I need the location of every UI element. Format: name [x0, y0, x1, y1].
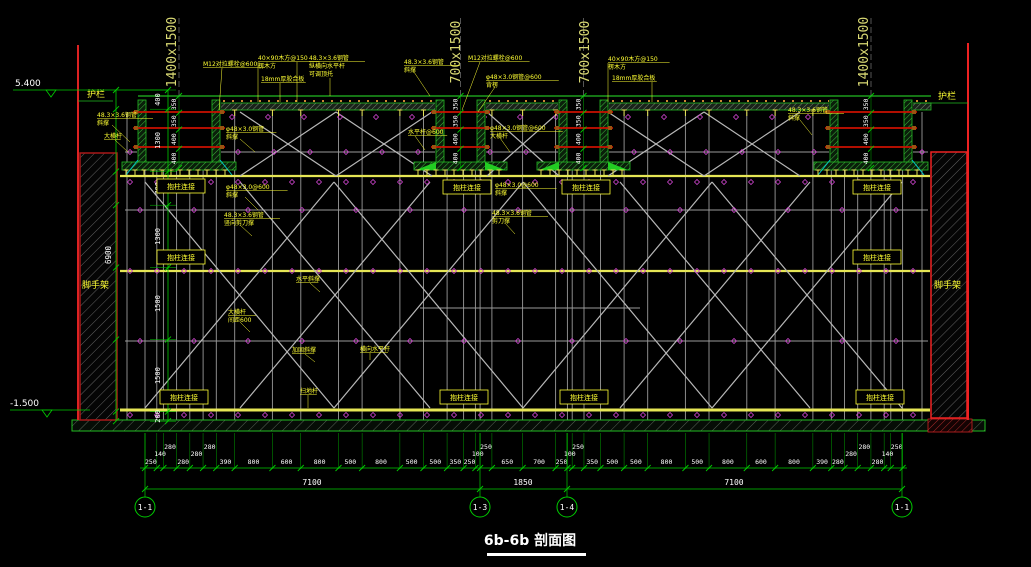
column-brace-box-label: 抱柱连接	[453, 183, 481, 192]
tie-rod-nut-icon	[608, 126, 612, 130]
callout-text: 楞木方	[608, 63, 626, 71]
callout-text: 48.3×3.6钢管	[404, 58, 444, 66]
deck-nail-icon	[765, 100, 767, 102]
coupler-diamond-icon	[587, 413, 592, 418]
coupler-diamond-icon	[770, 115, 775, 120]
callout-text: φ48×3.0@600	[226, 184, 270, 191]
right-wall-footing	[928, 419, 972, 432]
callout-leader	[305, 354, 315, 362]
deck-nail-icon	[621, 100, 623, 102]
callout-text: 48.3×3.6钢管	[788, 106, 828, 114]
deck-nail-icon	[720, 100, 722, 102]
column-brace-box-label: 抱柱连接	[863, 253, 891, 262]
beam-size-label-4: 1400x1500	[857, 17, 872, 87]
deck-nail-icon	[367, 100, 369, 102]
bottom-dim-value: 250	[464, 458, 476, 466]
coupler-diamond-icon	[830, 413, 835, 418]
bottom-dim-value: 800	[314, 458, 326, 466]
tie-rod-nut-icon	[608, 145, 612, 149]
tie-rod-nut-icon	[608, 110, 612, 114]
coupler-diamond-icon	[344, 180, 349, 185]
deck-nail-icon	[630, 100, 632, 102]
callout-text: 18mm厚胶合板	[261, 75, 304, 83]
left-dim-value: 400	[154, 93, 162, 106]
bottom-dim-value: 250	[556, 458, 568, 466]
column-brace-box-label: 抱柱连接	[167, 182, 195, 191]
deck-nail-icon	[241, 100, 243, 102]
deck-nail-icon	[916, 100, 918, 102]
beam-size-label-2: 700x1500	[449, 21, 464, 84]
bottom-dim-value: 800	[248, 458, 260, 466]
callout-text: 斜撑	[495, 189, 507, 197]
coupler-diamond-icon	[614, 180, 619, 185]
bottom-dim-value: 800	[661, 458, 673, 466]
beam-inner-dim: 350	[170, 115, 178, 127]
coupler-diamond-icon	[668, 180, 673, 185]
coupler-diamond-icon	[803, 413, 808, 418]
elevation-bottom-label: -1.500	[10, 399, 39, 409]
deck-nail-icon	[259, 100, 261, 102]
deck-nail-icon	[639, 100, 641, 102]
bottom-dim-value: 800	[722, 458, 734, 466]
bottom-dim-value: 800	[788, 458, 800, 466]
deck-nail-icon	[534, 100, 536, 102]
beam-inner-dim: 350	[170, 98, 178, 110]
guardrail-label-right: 护栏	[938, 90, 956, 102]
tie-rod-nut-icon	[555, 145, 559, 149]
bottom-dim-value: 250	[572, 443, 584, 451]
tie-rod-nut-icon	[220, 126, 224, 130]
callout-text: φ48×3.0@600	[495, 182, 539, 189]
tie-rod-nut-icon	[485, 110, 489, 114]
callout-text: 大横杆	[228, 308, 246, 316]
bottom-dim-value: 280	[204, 443, 216, 451]
deck-nail-icon	[819, 100, 821, 102]
section-drawing: 3503504004003503504004003503504004003503…	[0, 0, 1031, 567]
tie-rod-nut-icon	[432, 145, 436, 149]
callout-text: 48.3×3.6钢管	[224, 211, 264, 219]
coupler-diamond-icon	[533, 413, 538, 418]
scaffold-label-right: 脚手架	[934, 279, 961, 291]
deck-nail-icon	[304, 100, 306, 102]
beam-inner-dim: 350	[862, 115, 870, 127]
beam-side-form	[830, 100, 838, 163]
deck-nail-icon	[295, 100, 297, 102]
tie-rod-nut-icon	[485, 126, 489, 130]
coupler-diamond-icon	[830, 180, 835, 185]
coupler-diamond-icon	[371, 413, 376, 418]
bottom-total-left: 7100	[302, 478, 321, 487]
left-dim-value: 1500	[154, 367, 162, 384]
callout-text: 背楞	[486, 81, 498, 89]
deck-nail-icon	[729, 100, 731, 102]
callout-text: φ48×3.0钢管@600	[486, 73, 542, 81]
coupler-diamond-icon	[410, 115, 415, 120]
tie-rod-nut-icon	[912, 145, 916, 149]
coupler-diamond-icon	[452, 413, 457, 418]
callout-text: 剪刀撑	[492, 217, 510, 225]
coupler-diamond-icon	[290, 180, 295, 185]
deck-nail-icon	[801, 100, 803, 102]
column-brace-box-label: 抱柱连接	[450, 393, 478, 402]
bottom-dim-value: 280	[832, 458, 844, 466]
coupler-diamond-icon	[722, 180, 727, 185]
bottom-dim-value: 280	[872, 458, 884, 466]
callout-text: φ48×3.0钢管@600	[490, 124, 546, 132]
callout-text: 斜撑	[788, 114, 800, 122]
beam-inner-dim: 350	[575, 98, 583, 110]
deck-nail-icon	[783, 100, 785, 102]
coupler-diamond-icon	[317, 180, 322, 185]
deck-nail-icon	[925, 100, 927, 102]
callout-text: 加固斜撑	[292, 346, 316, 354]
beam-side-form	[477, 100, 485, 163]
coupler-diamond-icon	[230, 115, 235, 120]
left-dim-value: 1300	[154, 228, 162, 245]
bottom-dim-value: 280	[164, 443, 176, 451]
coupler-diamond-icon	[911, 413, 916, 418]
callout-text: 48.3×3.6钢管	[97, 111, 137, 119]
tie-rod-nut-icon	[220, 110, 224, 114]
coupler-diamond-icon	[425, 413, 430, 418]
tie-rod-nut-icon	[912, 110, 916, 114]
coupler-diamond-icon	[695, 413, 700, 418]
tie-rod-nut-icon	[555, 110, 559, 114]
ground-strip	[72, 420, 985, 431]
coupler-diamond-icon	[626, 115, 631, 120]
grid-bubble-label: 1-4	[560, 503, 575, 512]
coupler-diamond-icon	[302, 115, 307, 120]
callout-text: φ48×3.0钢管	[226, 125, 264, 133]
tie-rod-nut-icon	[134, 126, 138, 130]
deck-nail-icon	[612, 100, 614, 102]
deck-nail-icon	[747, 100, 749, 102]
tie-rod-nut-icon	[485, 145, 489, 149]
coupler-diamond-icon	[560, 413, 565, 418]
deck-nail-icon	[403, 100, 405, 102]
deck-nail-icon	[277, 100, 279, 102]
scaffold-posts	[127, 112, 922, 420]
coupler-diamond-icon	[734, 115, 739, 120]
beam-inner-dim: 350	[452, 115, 460, 127]
coupler-diamond-icon	[479, 413, 484, 418]
grid-bubble-label: 1-1	[138, 503, 153, 512]
left-dim-value: 1500	[154, 295, 162, 312]
coupler-diamond-icon	[209, 413, 214, 418]
coupler-diamond-icon	[290, 413, 295, 418]
bottom-dim-value: 350	[449, 458, 461, 466]
callout-text: 扫地杆	[300, 387, 318, 395]
bottom-dim-value: 280	[177, 458, 189, 466]
deck-nail-icon	[756, 100, 758, 102]
deck-nail-icon	[385, 100, 387, 102]
bottom-dim-value: 250	[480, 443, 492, 451]
deck-strip	[912, 103, 931, 110]
tie-rod-nut-icon	[134, 145, 138, 149]
deck-nail-icon	[232, 100, 234, 102]
deck-nail-icon	[552, 100, 554, 102]
beam-inner-dim: 400	[170, 133, 178, 145]
beam-inner-dim: 350	[575, 115, 583, 127]
deck-nail-icon	[516, 100, 518, 102]
tie-rod-nut-icon	[826, 126, 830, 130]
coupler-diamond-icon	[749, 180, 754, 185]
bottom-total-right: 7100	[724, 478, 743, 487]
coupler-diamond-icon	[806, 115, 811, 120]
grid-bubble-label: 1-1	[895, 503, 910, 512]
coupler-diamond-icon	[344, 413, 349, 418]
callout-text: 40×90木方@150	[608, 55, 658, 63]
scaffold-label-left: 脚手架	[82, 279, 109, 291]
deck-nail-icon	[421, 100, 423, 102]
beam-side-form	[904, 100, 912, 163]
bottom-dim-value: 700	[533, 458, 545, 466]
coupler-diamond-icon	[317, 413, 322, 418]
coupler-diamond-icon	[776, 413, 781, 418]
left-dim-value: 1300	[154, 132, 162, 149]
drawing-title: 6b-6b 剖面图	[484, 532, 576, 549]
coupler-markers	[128, 115, 925, 418]
deck-nail-icon	[525, 100, 527, 102]
bottom-dim-value: 140	[154, 450, 166, 458]
coupler-diamond-icon	[668, 413, 673, 418]
deck-nail-icon	[648, 100, 650, 102]
callout-text: M12对拉螺栓@600	[203, 60, 257, 68]
coupler-diamond-icon	[506, 413, 511, 418]
tie-rod-nut-icon	[432, 110, 436, 114]
coupler-diamond-icon	[776, 180, 781, 185]
callout-leader	[800, 120, 812, 135]
bottom-dim-value: 650	[501, 458, 513, 466]
callout-text: 斜撑	[404, 66, 416, 74]
column-brace-box-label: 抱柱连接	[866, 393, 894, 402]
callout-leader	[310, 283, 320, 292]
callout-text: 纵横向水平杆	[309, 62, 345, 70]
column-brace-box-label: 抱柱连接	[863, 183, 891, 192]
coupler-diamond-icon	[182, 413, 187, 418]
coupler-diamond-icon	[128, 180, 133, 185]
deck-nail-icon	[498, 100, 500, 102]
bottom-dim-value: 280	[845, 450, 857, 458]
cad-drawing-canvas: 3503504004003503504004003503504004003503…	[0, 0, 1031, 567]
callout-text: 48.3×3.6钢管	[492, 209, 532, 217]
deck-nail-icon	[702, 100, 704, 102]
deck-strip	[485, 103, 559, 110]
coupler-diamond-icon	[662, 115, 667, 120]
bottom-dim-value: 100	[564, 450, 576, 458]
callout-text: 楞木方	[258, 62, 276, 70]
coupler-diamond-icon	[722, 413, 727, 418]
callout-leader	[240, 139, 255, 152]
callout-text: 大横杆	[104, 132, 122, 140]
deck-nail-icon	[331, 100, 333, 102]
deck-nail-icon	[543, 100, 545, 102]
deck-nail-icon	[675, 100, 677, 102]
elevation-top-triangle-icon	[46, 90, 56, 97]
deck-nail-icon	[810, 100, 812, 102]
bottom-dim-value: 800	[375, 458, 387, 466]
coupler-diamond-icon	[236, 413, 241, 418]
coupler-diamond-icon	[641, 413, 646, 418]
scaffold-cross-braces	[145, 112, 902, 408]
beam-inner-dim: 400	[170, 152, 178, 164]
bottom-dim-value: 350	[586, 458, 598, 466]
coupler-diamond-icon	[128, 413, 133, 418]
coupler-diamond-icon	[209, 180, 214, 185]
callout-text: 横向水平杆	[360, 345, 390, 353]
coupler-diamond-icon	[614, 413, 619, 418]
deck-nail-icon	[394, 100, 396, 102]
deck-nail-icon	[711, 100, 713, 102]
column-brace-box-label: 抱柱连接	[170, 393, 198, 402]
coupler-diamond-icon	[266, 115, 271, 120]
beam-size-label-1: 1400x1500	[165, 17, 180, 87]
callout-text: 48.3×3.6钢管	[309, 54, 349, 62]
callout-text: 可调顶托	[309, 70, 333, 78]
deck-nail-icon	[340, 100, 342, 102]
callout-text: 大横杆	[490, 132, 508, 140]
bottom-dim-value: 390	[816, 458, 828, 466]
callout-leader	[115, 140, 128, 152]
deck-nail-icon	[412, 100, 414, 102]
bottom-dim-value: 500	[429, 458, 441, 466]
tie-rod-nut-icon	[912, 126, 916, 130]
deck-nail-icon	[322, 100, 324, 102]
bottom-dim-value: 140	[882, 450, 894, 458]
deck-nail-icon	[792, 100, 794, 102]
bottom-dim-value: 280	[858, 443, 870, 451]
grid-bubbles: 1-1 1-3 1-4 1-1	[135, 433, 912, 517]
callout-text: 水平杆@600	[408, 128, 444, 136]
deck-nail-icon	[684, 100, 686, 102]
tie-rod-nut-icon	[555, 126, 559, 130]
left-total-dim-value: 6900	[104, 245, 113, 264]
callout-text: 斜撑	[226, 133, 238, 141]
coupler-diamond-icon	[263, 413, 268, 418]
coupler-diamond-icon	[518, 115, 523, 120]
callout-text: 竖向剪刀撑	[224, 219, 254, 227]
coupler-diamond-icon	[371, 180, 376, 185]
bottom-dim-value: 390	[220, 458, 232, 466]
callout-text: M12对拉螺栓@600	[468, 54, 522, 62]
coupler-diamond-icon	[695, 180, 700, 185]
bottom-dim-value: 250	[145, 458, 157, 466]
beam-inner-dim: 400	[575, 133, 583, 145]
callout-text: 40×90木方@150	[258, 54, 308, 62]
deck-nail-icon	[489, 100, 491, 102]
callout-text: 斜撑	[226, 191, 238, 199]
deck-nail-icon	[693, 100, 695, 102]
deck-nail-icon	[738, 100, 740, 102]
column-brace-box-label: 抱柱连接	[572, 183, 600, 192]
bottom-total-middle: 1850	[513, 478, 532, 487]
beam-inner-dim: 350	[862, 98, 870, 110]
callout-text: 18mm厚胶合板	[612, 74, 655, 82]
beam-inner-dim: 400	[862, 152, 870, 164]
bottom-dim-value: 600	[281, 458, 293, 466]
deck-nail-icon	[774, 100, 776, 102]
bottom-dim-value: 500	[406, 458, 418, 466]
deck-nail-icon	[376, 100, 378, 102]
deck-nail-icon	[507, 100, 509, 102]
coupler-diamond-icon	[803, 180, 808, 185]
deck-strip	[219, 103, 436, 110]
coupler-diamond-icon	[911, 180, 916, 185]
bottom-dim-value: 500	[691, 458, 703, 466]
callout-text: 斜撑	[97, 119, 109, 127]
bottom-dim-value: 280	[191, 450, 203, 458]
tie-rod-nut-icon	[826, 145, 830, 149]
column-brace-box-label: 抱柱连接	[167, 253, 195, 262]
column-brace-box-label: 抱柱连接	[570, 393, 598, 402]
bottom-dim-value: 250	[891, 443, 903, 451]
grid-bubble-label: 1-3	[473, 503, 488, 512]
beam-size-label-3: 700x1500	[578, 21, 593, 84]
deck-nail-icon	[657, 100, 659, 102]
beam-inner-dim: 400	[575, 152, 583, 164]
beam-inner-dim: 350	[452, 98, 460, 110]
callout-leader	[414, 72, 430, 96]
coupler-diamond-icon	[641, 180, 646, 185]
beam-inner-dim: 400	[452, 133, 460, 145]
deck-nail-icon	[286, 100, 288, 102]
deck-nail-icon	[313, 100, 315, 102]
deck-nail-icon	[666, 100, 668, 102]
coupler-diamond-icon	[749, 413, 754, 418]
beam-inner-dim: 400	[452, 152, 460, 164]
elevation-bottom-triangle-icon	[42, 410, 52, 417]
bottom-dim-value: 500	[630, 458, 642, 466]
deck-nail-icon	[268, 100, 270, 102]
beam-side-form	[600, 100, 608, 163]
bottom-dim-value: 500	[344, 458, 356, 466]
left-dim-value: 200	[154, 410, 162, 423]
deck-nail-icon	[223, 100, 225, 102]
tie-rod-nut-icon	[220, 145, 224, 149]
deck-nail-icon	[358, 100, 360, 102]
deck-nail-icon	[349, 100, 351, 102]
bottom-dim-value: 500	[606, 458, 618, 466]
callout-leader	[500, 138, 510, 152]
deck-nail-icon	[430, 100, 432, 102]
beam-inner-dim: 400	[862, 133, 870, 145]
title-underline	[487, 553, 586, 556]
elevation-top-label: 5.400	[15, 79, 41, 89]
callout-text: 水平斜撑	[296, 275, 320, 283]
beam-side-form	[138, 100, 146, 163]
coupler-diamond-icon	[374, 115, 379, 120]
bottom-dim-value: 100	[472, 450, 484, 458]
callout-text: 间距600	[228, 316, 252, 324]
deck-nail-icon	[250, 100, 252, 102]
bottom-dim-value: 600	[755, 458, 767, 466]
